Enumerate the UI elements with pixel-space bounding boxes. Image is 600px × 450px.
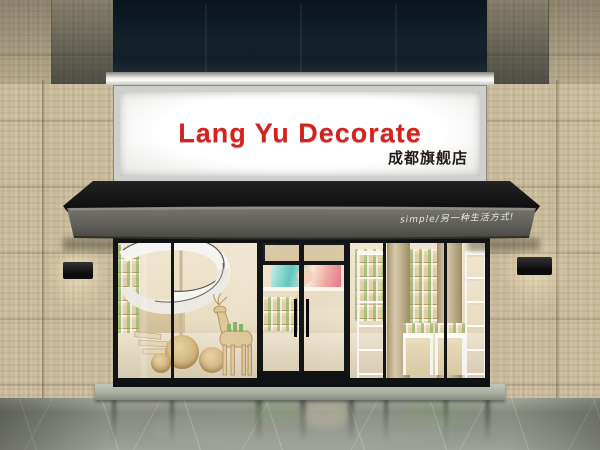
shop-signboard: Lang Yu Decorate 成都旗舰店 bbox=[113, 85, 487, 183]
wall-lamp-right bbox=[517, 257, 552, 275]
display-table-b bbox=[435, 323, 465, 375]
entrance-awning: simple/另一种生活方式! bbox=[63, 181, 540, 241]
upper-floor-glass-facade bbox=[113, 0, 487, 80]
sign-lightbox-face: Lang Yu Decorate 成都旗舰店 bbox=[120, 92, 480, 176]
right-wall-shelves-b bbox=[410, 249, 437, 323]
door-post-left bbox=[257, 237, 263, 387]
sign-top-ledge bbox=[106, 72, 494, 86]
left-wall-corner bbox=[42, 80, 45, 402]
sign-subtitle: 成都旗舰店 bbox=[388, 147, 468, 168]
left-pillar-shadow bbox=[51, 0, 113, 84]
mullion bbox=[171, 237, 174, 387]
display-table-a bbox=[403, 323, 433, 375]
white-ladder-shelf-a bbox=[357, 251, 385, 381]
transom-rail bbox=[257, 261, 350, 265]
left-edge-shadow bbox=[0, 0, 52, 84]
wooden-deer-display bbox=[205, 293, 255, 385]
rattan-drum bbox=[151, 353, 171, 373]
frame-right bbox=[485, 237, 490, 387]
right-pillar-shadow bbox=[487, 0, 549, 84]
frame-left bbox=[113, 237, 118, 387]
door-center-stile bbox=[299, 237, 304, 387]
door-handle-right bbox=[306, 299, 309, 337]
mullion bbox=[383, 237, 386, 387]
storefront-window-wall bbox=[113, 237, 490, 387]
door-post-right bbox=[344, 237, 350, 387]
sign-title: Lang Yu Decorate bbox=[120, 118, 480, 149]
white-ladder-shelf-b bbox=[465, 251, 486, 383]
wall-lamp-left bbox=[63, 262, 93, 279]
glass-highlight bbox=[141, 243, 147, 379]
right-edge-shadow bbox=[548, 0, 600, 84]
door-handle-left bbox=[294, 299, 297, 337]
storefront-bottom-frame bbox=[113, 378, 490, 387]
storefront-scene: Lang Yu Decorate 成都旗舰店 simple/另一种生活方式! bbox=[0, 0, 600, 450]
door-bottom-rail bbox=[257, 371, 350, 378]
mullion bbox=[444, 237, 447, 387]
